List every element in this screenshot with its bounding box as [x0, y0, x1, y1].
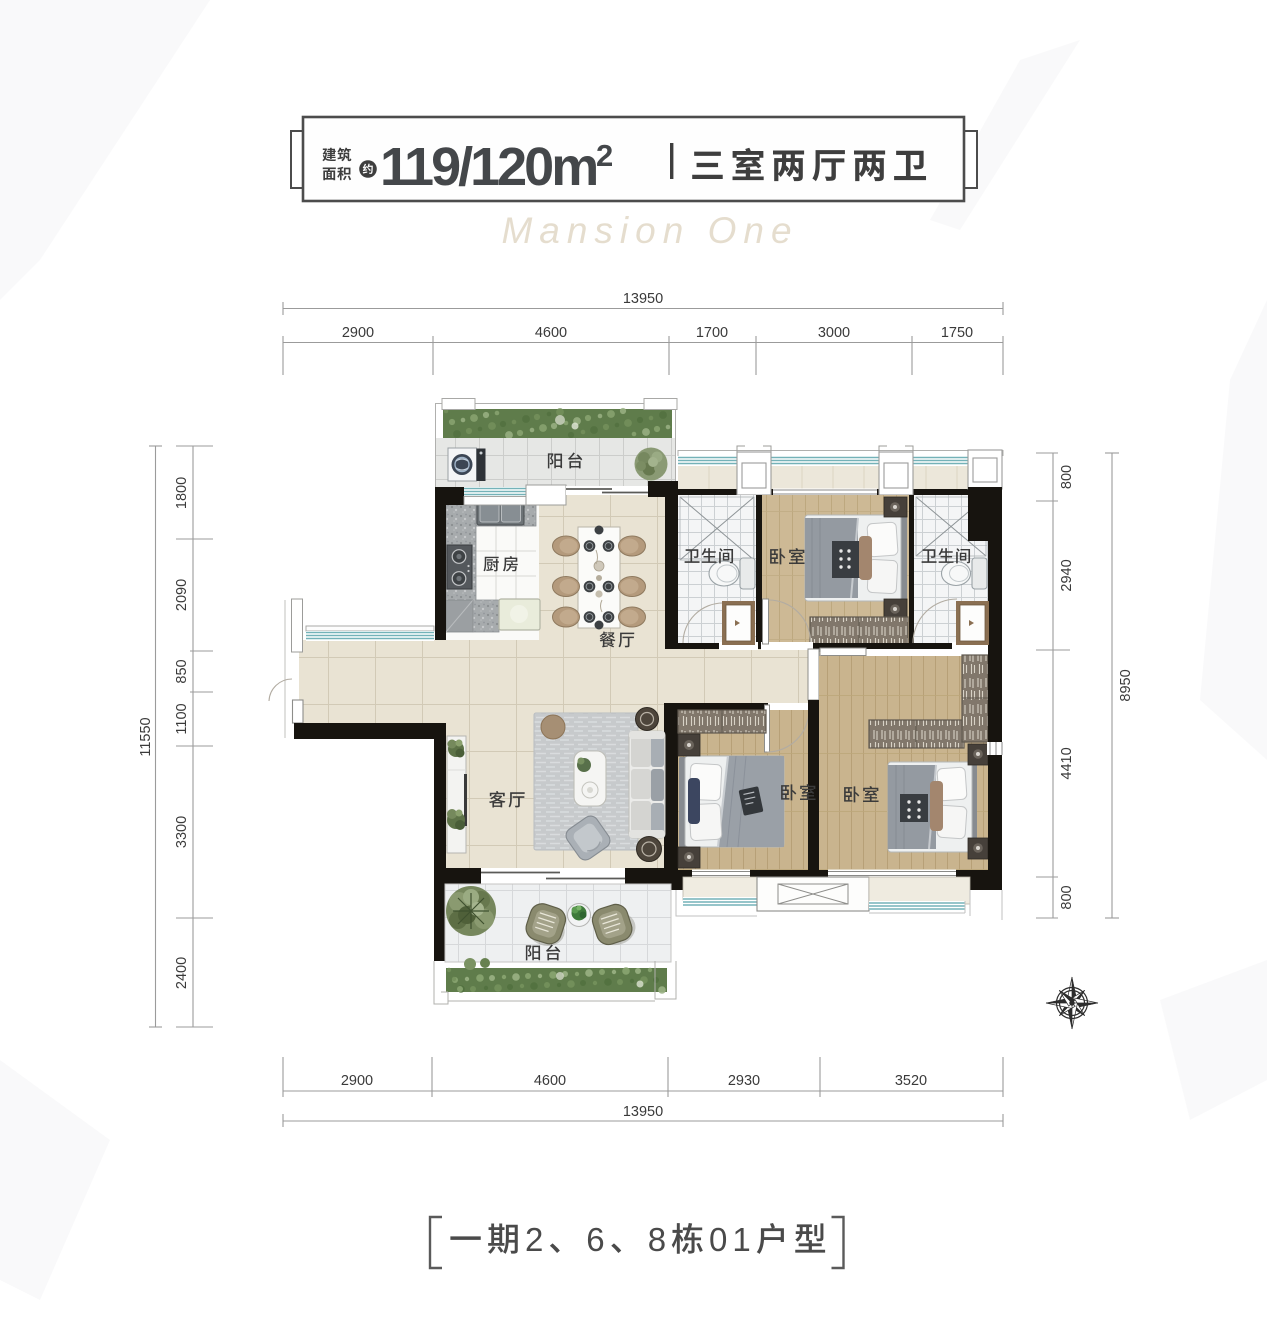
svg-text:2940: 2940 [1059, 559, 1075, 591]
svg-text:119/120m: 119/120m [380, 137, 596, 197]
svg-text:1100: 1100 [174, 703, 190, 734]
svg-text:2900: 2900 [341, 1073, 373, 1089]
svg-text:8: 8 [648, 1221, 666, 1258]
svg-text:3520: 3520 [895, 1073, 927, 1089]
svg-text:4600: 4600 [534, 1073, 566, 1089]
svg-text:2900: 2900 [342, 325, 374, 341]
svg-text:2: 2 [525, 1221, 543, 1258]
svg-text:1: 1 [732, 1221, 750, 1258]
svg-text:1750: 1750 [941, 325, 973, 341]
svg-text:2: 2 [596, 138, 613, 173]
svg-text:800: 800 [1059, 885, 1075, 909]
svg-text:1800: 1800 [174, 477, 190, 509]
svg-text:11550: 11550 [138, 717, 154, 756]
svg-text:2090: 2090 [174, 579, 190, 611]
svg-text:4600: 4600 [535, 325, 567, 341]
svg-text:850: 850 [174, 659, 190, 683]
svg-text:3000: 3000 [818, 325, 850, 341]
svg-text:2400: 2400 [174, 957, 190, 989]
svg-text:13950: 13950 [623, 1104, 663, 1120]
svg-text:0: 0 [709, 1221, 727, 1258]
svg-text:13950: 13950 [623, 291, 663, 307]
svg-text:Mansion One: Mansion One [501, 210, 798, 251]
svg-text:3300: 3300 [174, 816, 190, 848]
svg-text:2930: 2930 [728, 1073, 760, 1089]
svg-text:4410: 4410 [1059, 747, 1075, 779]
svg-text:8950: 8950 [1118, 669, 1134, 701]
svg-text:6: 6 [586, 1221, 604, 1258]
svg-text:800: 800 [1059, 465, 1075, 489]
svg-text:1700: 1700 [696, 325, 728, 341]
